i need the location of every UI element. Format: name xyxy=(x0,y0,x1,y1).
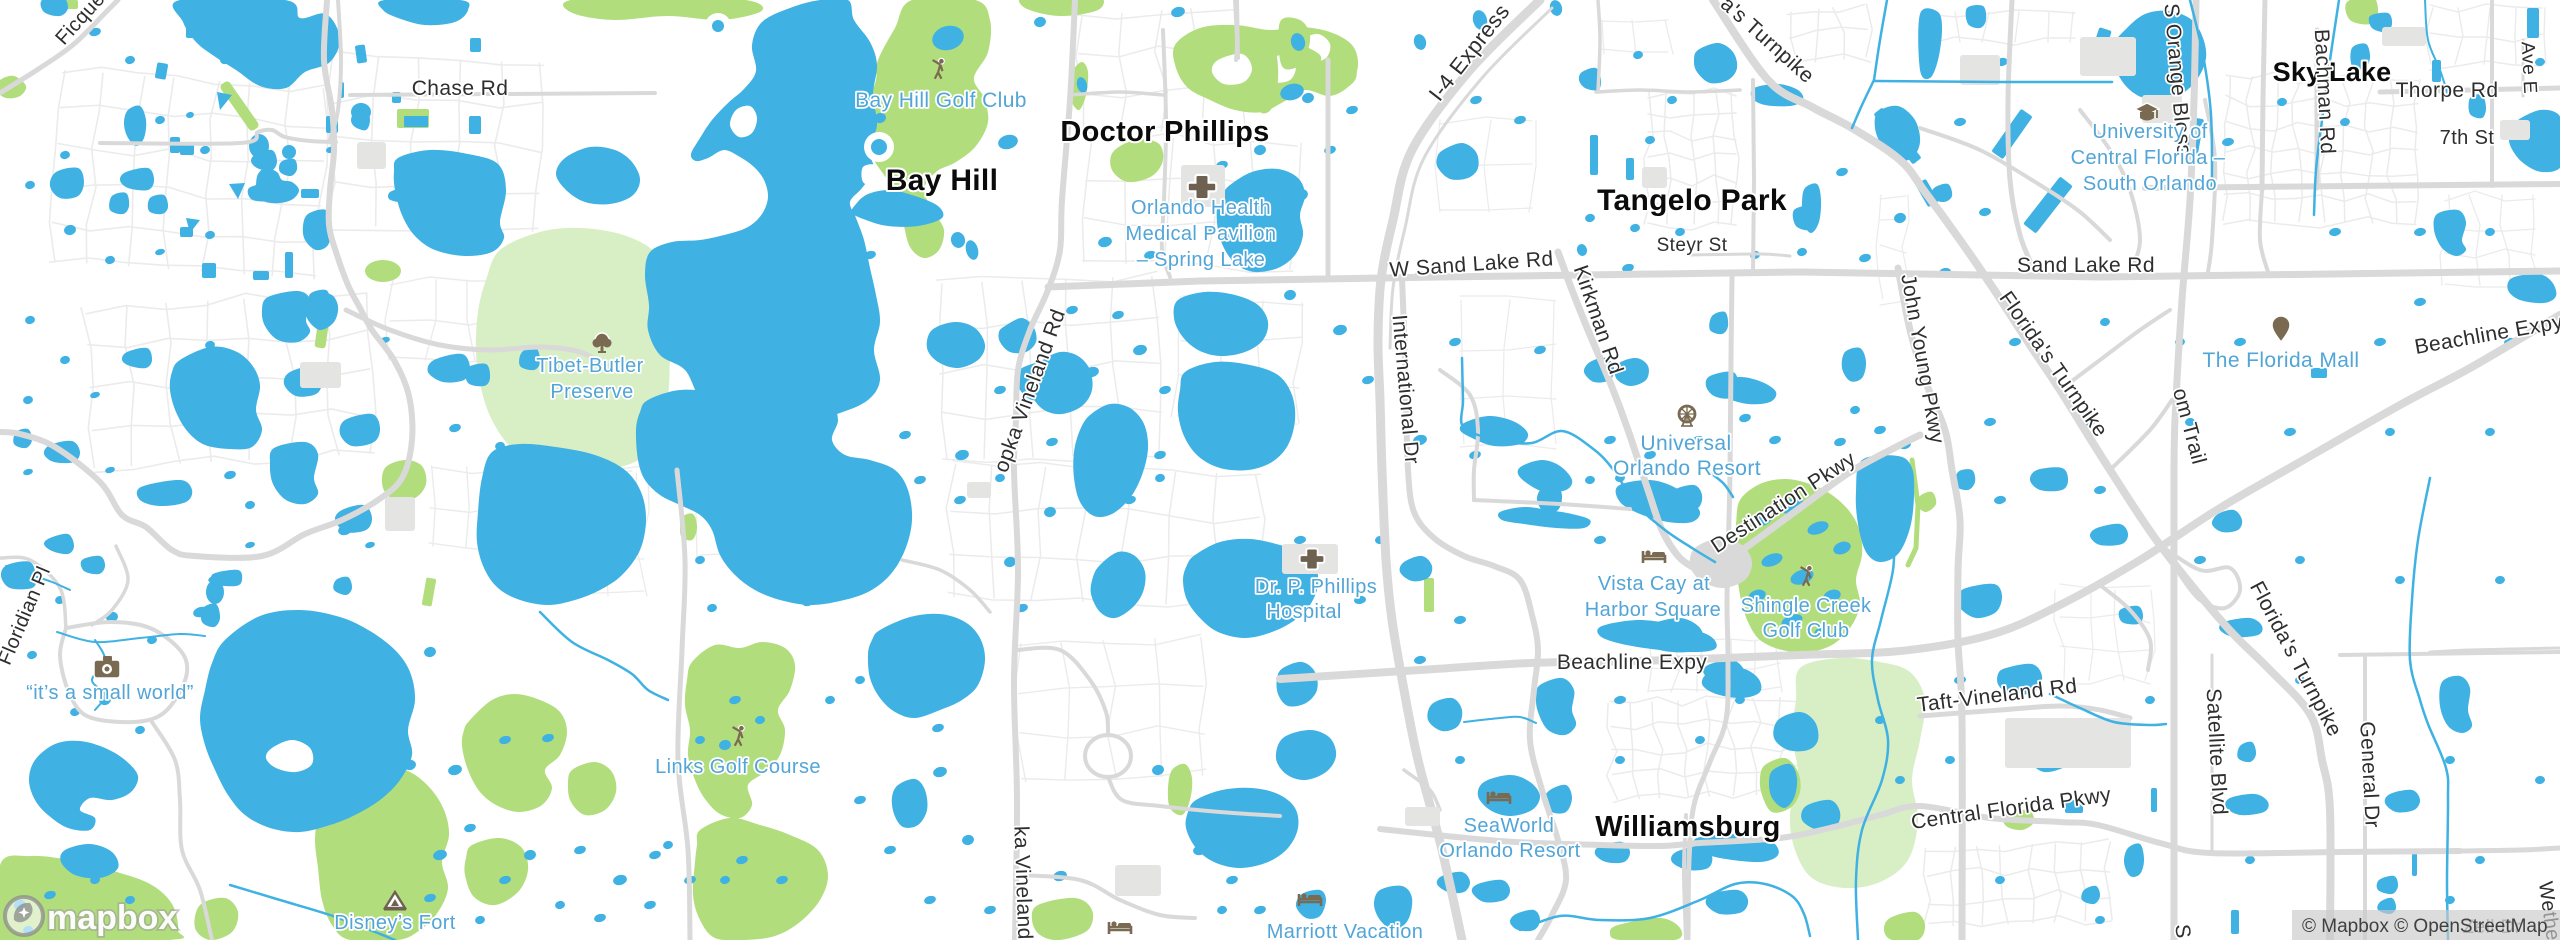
svg-text:Universal: Universal xyxy=(1640,432,1731,455)
svg-text:Dr. P. Phillips: Dr. P. Phillips xyxy=(1255,576,1377,598)
svg-text:Beachline Expy: Beachline Expy xyxy=(1557,651,1707,674)
svg-text:Medical Pavilion: Medical Pavilion xyxy=(1126,223,1277,245)
svg-text:Orlando Resort: Orlando Resort xyxy=(1439,840,1580,862)
svg-text:Steyr St: Steyr St xyxy=(1657,235,1728,256)
svg-text:Sand Lake Rd: Sand Lake Rd xyxy=(2017,254,2155,277)
svg-text:Hospital: Hospital xyxy=(1266,601,1341,623)
svg-text:South Orlando: South Orlando xyxy=(2083,173,2217,195)
svg-text:© Mapbox © OpenStreetMap: © Mapbox © OpenStreetMap xyxy=(2302,916,2548,937)
svg-text:Preserve: Preserve xyxy=(550,381,633,403)
svg-text:S: S xyxy=(2170,923,2194,939)
svg-text:– Spring Lake: – Spring Lake xyxy=(1137,249,1266,271)
svg-text:Orlando Resort: Orlando Resort xyxy=(1613,457,1761,480)
svg-text:Central Florida –: Central Florida – xyxy=(2071,147,2226,169)
svg-text:“it’s a small world”: “it’s a small world” xyxy=(26,682,194,704)
svg-text:Bay Hill Golf Club: Bay Hill Golf Club xyxy=(855,89,1027,112)
svg-text:Ave E: Ave E xyxy=(2517,41,2541,94)
svg-text:Vista Cay at: Vista Cay at xyxy=(1598,573,1710,595)
svg-text:Disney’s Fort: Disney’s Fort xyxy=(334,912,456,934)
svg-text:Doctor Phillips: Doctor Phillips xyxy=(1060,116,1269,148)
svg-text:Orlando Health: Orlando Health xyxy=(1131,197,1271,219)
svg-text:Thorpe Rd: Thorpe Rd xyxy=(2396,79,2499,102)
svg-text:Williamsburg: Williamsburg xyxy=(1595,811,1780,843)
svg-text:Tangelo Park: Tangelo Park xyxy=(1597,184,1787,217)
svg-text:Harbor Square: Harbor Square xyxy=(1585,599,1721,621)
svg-text:Golf Club: Golf Club xyxy=(1763,620,1850,642)
svg-text:Shingle Creek: Shingle Creek xyxy=(1741,595,1872,617)
svg-text:mapbox: mapbox xyxy=(47,899,177,937)
svg-text:SeaWorld: SeaWorld xyxy=(1464,815,1555,837)
svg-text:Bay Hill: Bay Hill xyxy=(886,164,998,197)
svg-text:7th St: 7th St xyxy=(2440,127,2495,149)
svg-text:Tibet-Butler: Tibet-Butler xyxy=(536,355,643,377)
svg-text:Marriott Vacation: Marriott Vacation xyxy=(1267,921,1424,940)
svg-text:University of: University of xyxy=(2092,121,2207,143)
svg-text:The Florida Mall: The Florida Mall xyxy=(2203,349,2360,372)
svg-text:ka Vineland Rd: ka Vineland Rd xyxy=(1009,826,1037,940)
svg-text:Chase Rd: Chase Rd xyxy=(412,77,509,100)
svg-text:Links Golf Course: Links Golf Course xyxy=(655,756,821,778)
